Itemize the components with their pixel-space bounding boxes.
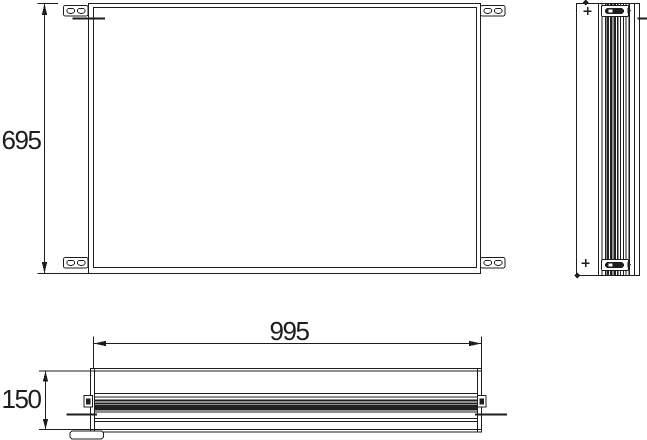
width-dimension-label: 995 — [259, 318, 319, 344]
arrowhead-up — [42, 4, 47, 16]
side-clip-bottom — [602, 260, 632, 271]
side-profile-layers — [599, 4, 630, 276]
bottom-profile-layers — [95, 394, 478, 422]
screw-cross-mark-bottom — [582, 259, 590, 267]
front-outer-edge — [89, 4, 481, 274]
mounting-bracket-bottom-right — [481, 258, 506, 269]
bracket-slot — [78, 260, 86, 265]
diamond-mark-bottom — [574, 273, 580, 279]
depth-dimension-label: 150 — [0, 386, 42, 412]
bracket-slot — [67, 260, 75, 265]
bracket-slot — [67, 8, 75, 13]
bracket-slot — [484, 8, 492, 13]
bottom-clip-left — [84, 396, 93, 408]
height-dimension-label: 695 — [0, 127, 42, 153]
drawing-canvas — [0, 0, 647, 440]
depth-dimension — [39, 371, 91, 430]
bottom-view — [67, 369, 508, 440]
mounting-bracket-top-right — [481, 6, 506, 17]
bracket-slot — [78, 8, 86, 13]
side-view — [574, 0, 647, 279]
arrowhead-left — [94, 341, 107, 346]
mounting-bracket-top-left — [64, 6, 89, 17]
front-view — [64, 4, 506, 274]
bracket-slot — [495, 8, 503, 13]
arrowhead-up — [43, 371, 48, 382]
height-dimension — [38, 4, 96, 274]
arrowhead-right — [469, 341, 482, 346]
bracket-slot — [495, 260, 503, 265]
bottom-clip-right — [478, 396, 487, 408]
arrowhead-down — [42, 262, 47, 274]
diamond-mark-top — [583, 0, 589, 6]
screw-cross-mark-top — [584, 7, 592, 15]
technical-drawing: 695 995 150 — [0, 0, 647, 440]
arrowhead-down — [43, 419, 48, 430]
mounting-bracket-bottom-left — [64, 258, 89, 269]
junction-box — [70, 431, 104, 439]
side-clip-top — [602, 6, 632, 17]
front-inner-edge — [94, 8, 477, 268]
bracket-slot — [484, 260, 492, 265]
